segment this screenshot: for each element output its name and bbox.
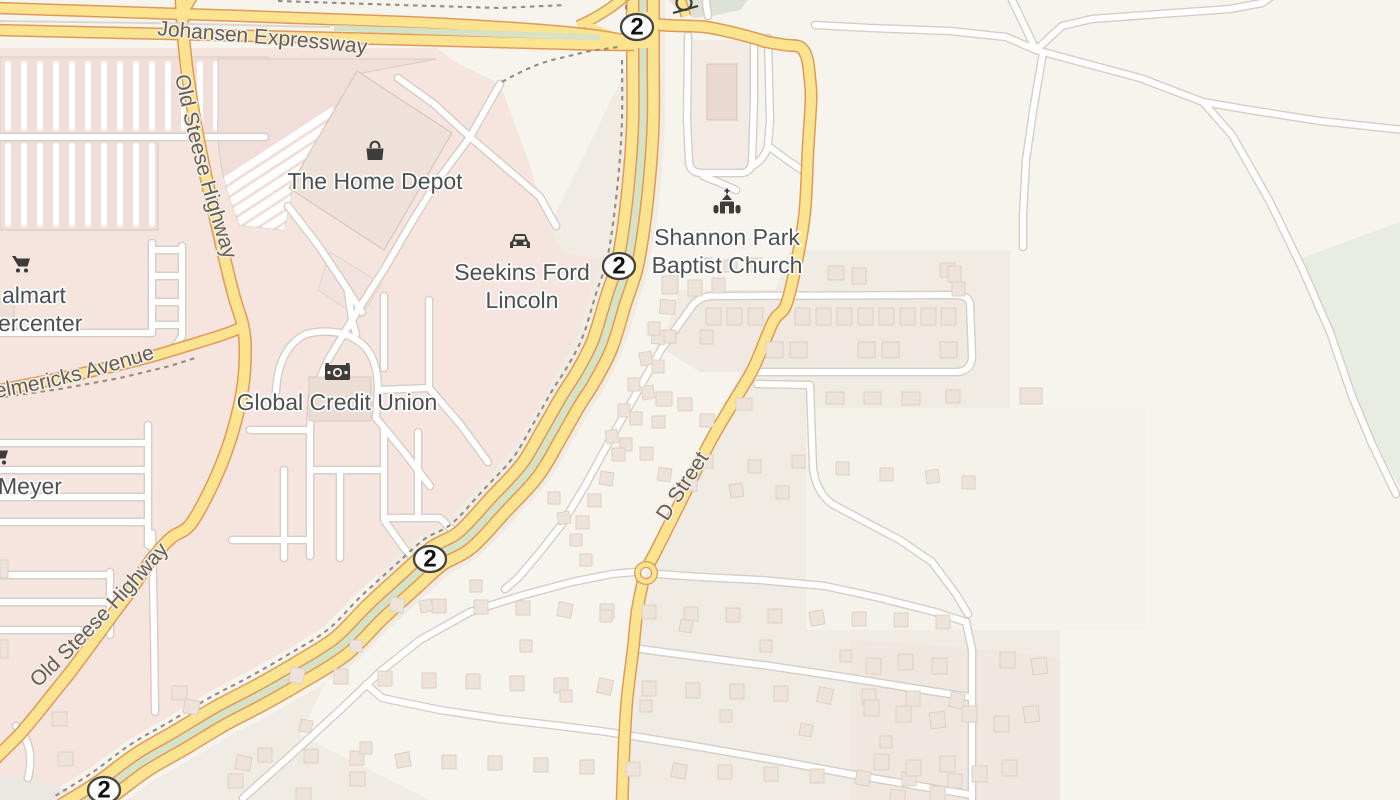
svg-text:Seekins Ford: Seekins Ford [454, 259, 590, 285]
svg-text:Shannon Park: Shannon Park [654, 224, 800, 250]
svg-text:ercenter: ercenter [0, 310, 83, 336]
svg-text:Baptist Church: Baptist Church [652, 252, 803, 278]
svg-text:2: 2 [612, 253, 625, 280]
svg-text:2: 2 [97, 777, 110, 800]
svg-text:Lincoln: Lincoln [486, 287, 559, 313]
svg-text:2: 2 [423, 546, 436, 573]
svg-text:almart: almart [2, 282, 67, 308]
svg-text:The Home Depot: The Home Depot [287, 168, 463, 194]
svg-text:Meyer: Meyer [0, 473, 62, 499]
svg-text:2: 2 [630, 14, 643, 41]
svg-text:Global Credit Union: Global Credit Union [237, 389, 438, 415]
